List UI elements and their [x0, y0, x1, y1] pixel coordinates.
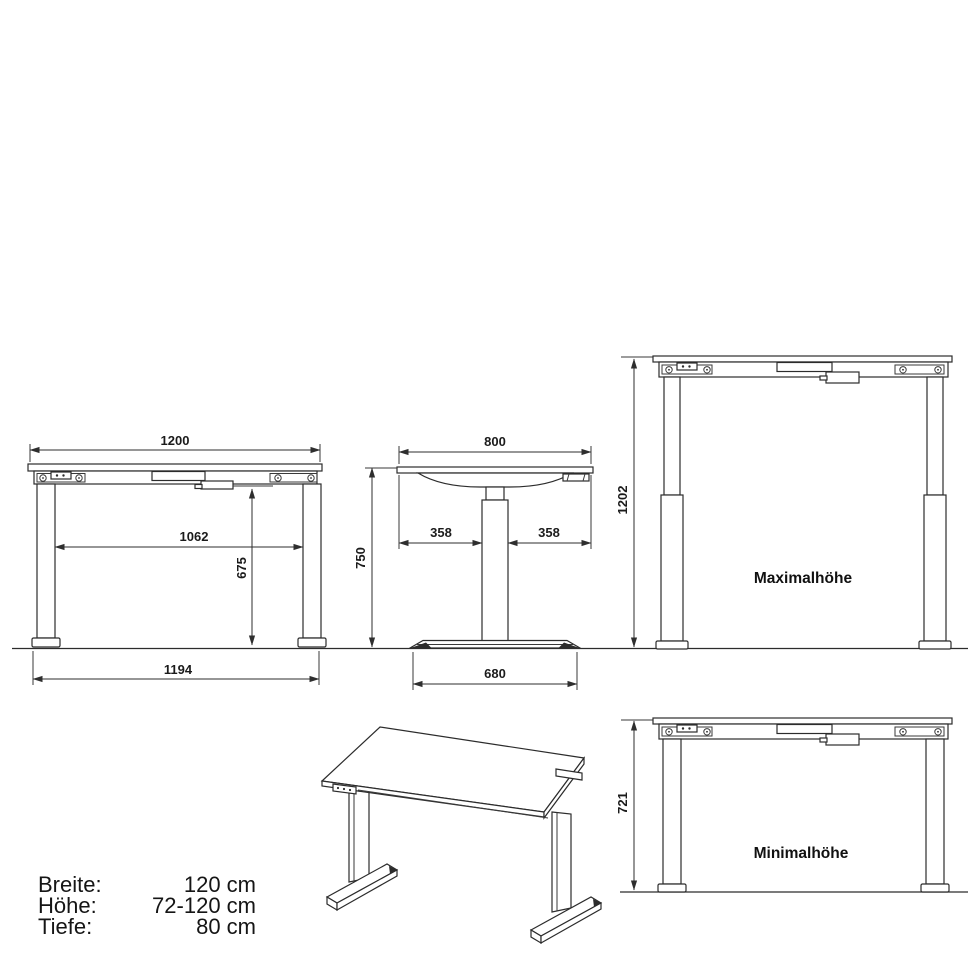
- foot-front-right: [298, 638, 326, 647]
- column-side: [482, 487, 508, 641]
- control-button-box-front: [51, 472, 71, 479]
- tabletop-max: [653, 356, 952, 362]
- spec-value-hoehe: 72-120 cm: [152, 895, 256, 916]
- controller-box-max: [820, 372, 859, 383]
- frame-rail-min: [659, 724, 948, 745]
- dim-label-750: 750: [353, 547, 368, 569]
- foot-front-left: [32, 638, 60, 647]
- technical-drawing-sheet: 1200: [0, 0, 970, 971]
- dimension-front-underframe-height: 675: [234, 489, 252, 645]
- foot-max-left: [656, 641, 688, 649]
- bracket-side: [418, 473, 589, 487]
- spec-label-hoehe: Höhe:: [38, 895, 97, 916]
- max-height-label: Maximalhöhe: [754, 570, 853, 587]
- dim-label-675: 675: [234, 557, 249, 579]
- base-foot-side: [410, 641, 580, 649]
- dim-label-358-left: 358: [430, 525, 452, 540]
- side-view: 800 358 358 750: [353, 434, 593, 690]
- dimension-max-height: 1202: [615, 359, 634, 647]
- spec-row-tiefe: Tiefe: 80 cm: [38, 916, 256, 937]
- leg-max-left: [661, 377, 683, 641]
- leg-front-right: [303, 484, 321, 638]
- dim-label-800: 800: [484, 434, 506, 449]
- frame-rail-front: [34, 471, 317, 489]
- frame-rail-max: [659, 362, 948, 383]
- tabletop-front: [28, 464, 322, 471]
- tabletop-side: [397, 467, 593, 473]
- spec-label-tiefe: Tiefe:: [38, 916, 92, 937]
- dim-label-1194: 1194: [164, 662, 193, 677]
- spec-value-tiefe: 80 cm: [196, 916, 256, 937]
- iso-leg-right: [552, 812, 571, 912]
- iso-view: [322, 727, 601, 943]
- dimension-min-height: 721: [615, 721, 634, 890]
- spec-row-hoehe: Höhe: 72-120 cm: [38, 895, 256, 916]
- foot-max-right: [919, 641, 951, 649]
- dimension-side-top-depth: 800: [399, 434, 591, 464]
- control-button-box-max: [677, 363, 697, 370]
- drawing-svg: 1200: [0, 0, 970, 971]
- dim-label-721: 721: [615, 792, 630, 814]
- min-height-view: 721: [615, 718, 952, 892]
- leg-front-left: [37, 484, 55, 638]
- spec-table: Breite: 120 cm Höhe: 72-120 cm Tiefe: 80…: [38, 874, 256, 937]
- dimension-front-feet-span: 1194: [33, 651, 319, 685]
- iso-leg-left: [349, 790, 369, 882]
- max-height-view: 1202: [615, 356, 952, 649]
- dim-label-1062: 1062: [180, 529, 209, 544]
- dim-label-1200: 1200: [161, 433, 190, 448]
- front-view: 1200: [28, 433, 326, 685]
- foot-min-right: [921, 884, 949, 892]
- controller-box-min: [820, 734, 859, 745]
- leg-min-right: [926, 739, 944, 884]
- dim-label-1202: 1202: [615, 486, 630, 515]
- spec-row-breite: Breite: 120 cm: [38, 874, 256, 895]
- leg-min-left: [663, 739, 681, 884]
- spec-value-breite: 120 cm: [184, 874, 256, 895]
- spec-label-breite: Breite:: [38, 874, 102, 895]
- min-height-label: Minimalhöhe: [754, 845, 849, 862]
- leg-max-right: [924, 377, 946, 641]
- dim-label-358-right: 358: [538, 525, 560, 540]
- dimension-front-top-width: 1200: [30, 433, 320, 462]
- tabletop-min: [653, 718, 952, 724]
- dimension-side-height: 750: [353, 468, 397, 647]
- foot-min-left: [658, 884, 686, 892]
- dim-label-680: 680: [484, 666, 506, 681]
- control-button-box-min: [677, 725, 697, 732]
- dimension-front-inner-width: 1062: [55, 529, 303, 547]
- dimension-side-foot-depth: 680: [413, 652, 577, 690]
